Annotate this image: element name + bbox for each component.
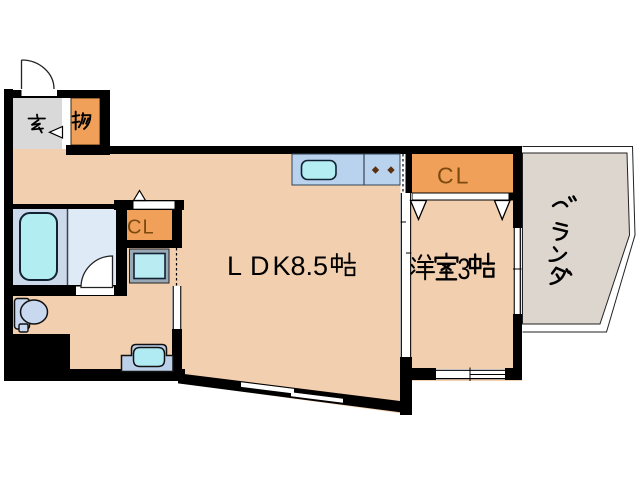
svg-text:D: D	[250, 251, 270, 281]
svg-text:3: 3	[458, 252, 471, 285]
svg-text:L: L	[227, 251, 242, 281]
svg-text:CL: CL	[127, 217, 155, 239]
svg-text:8.5: 8.5	[291, 251, 329, 281]
svg-text:K: K	[273, 251, 291, 281]
svg-text:CL: CL	[437, 163, 470, 189]
